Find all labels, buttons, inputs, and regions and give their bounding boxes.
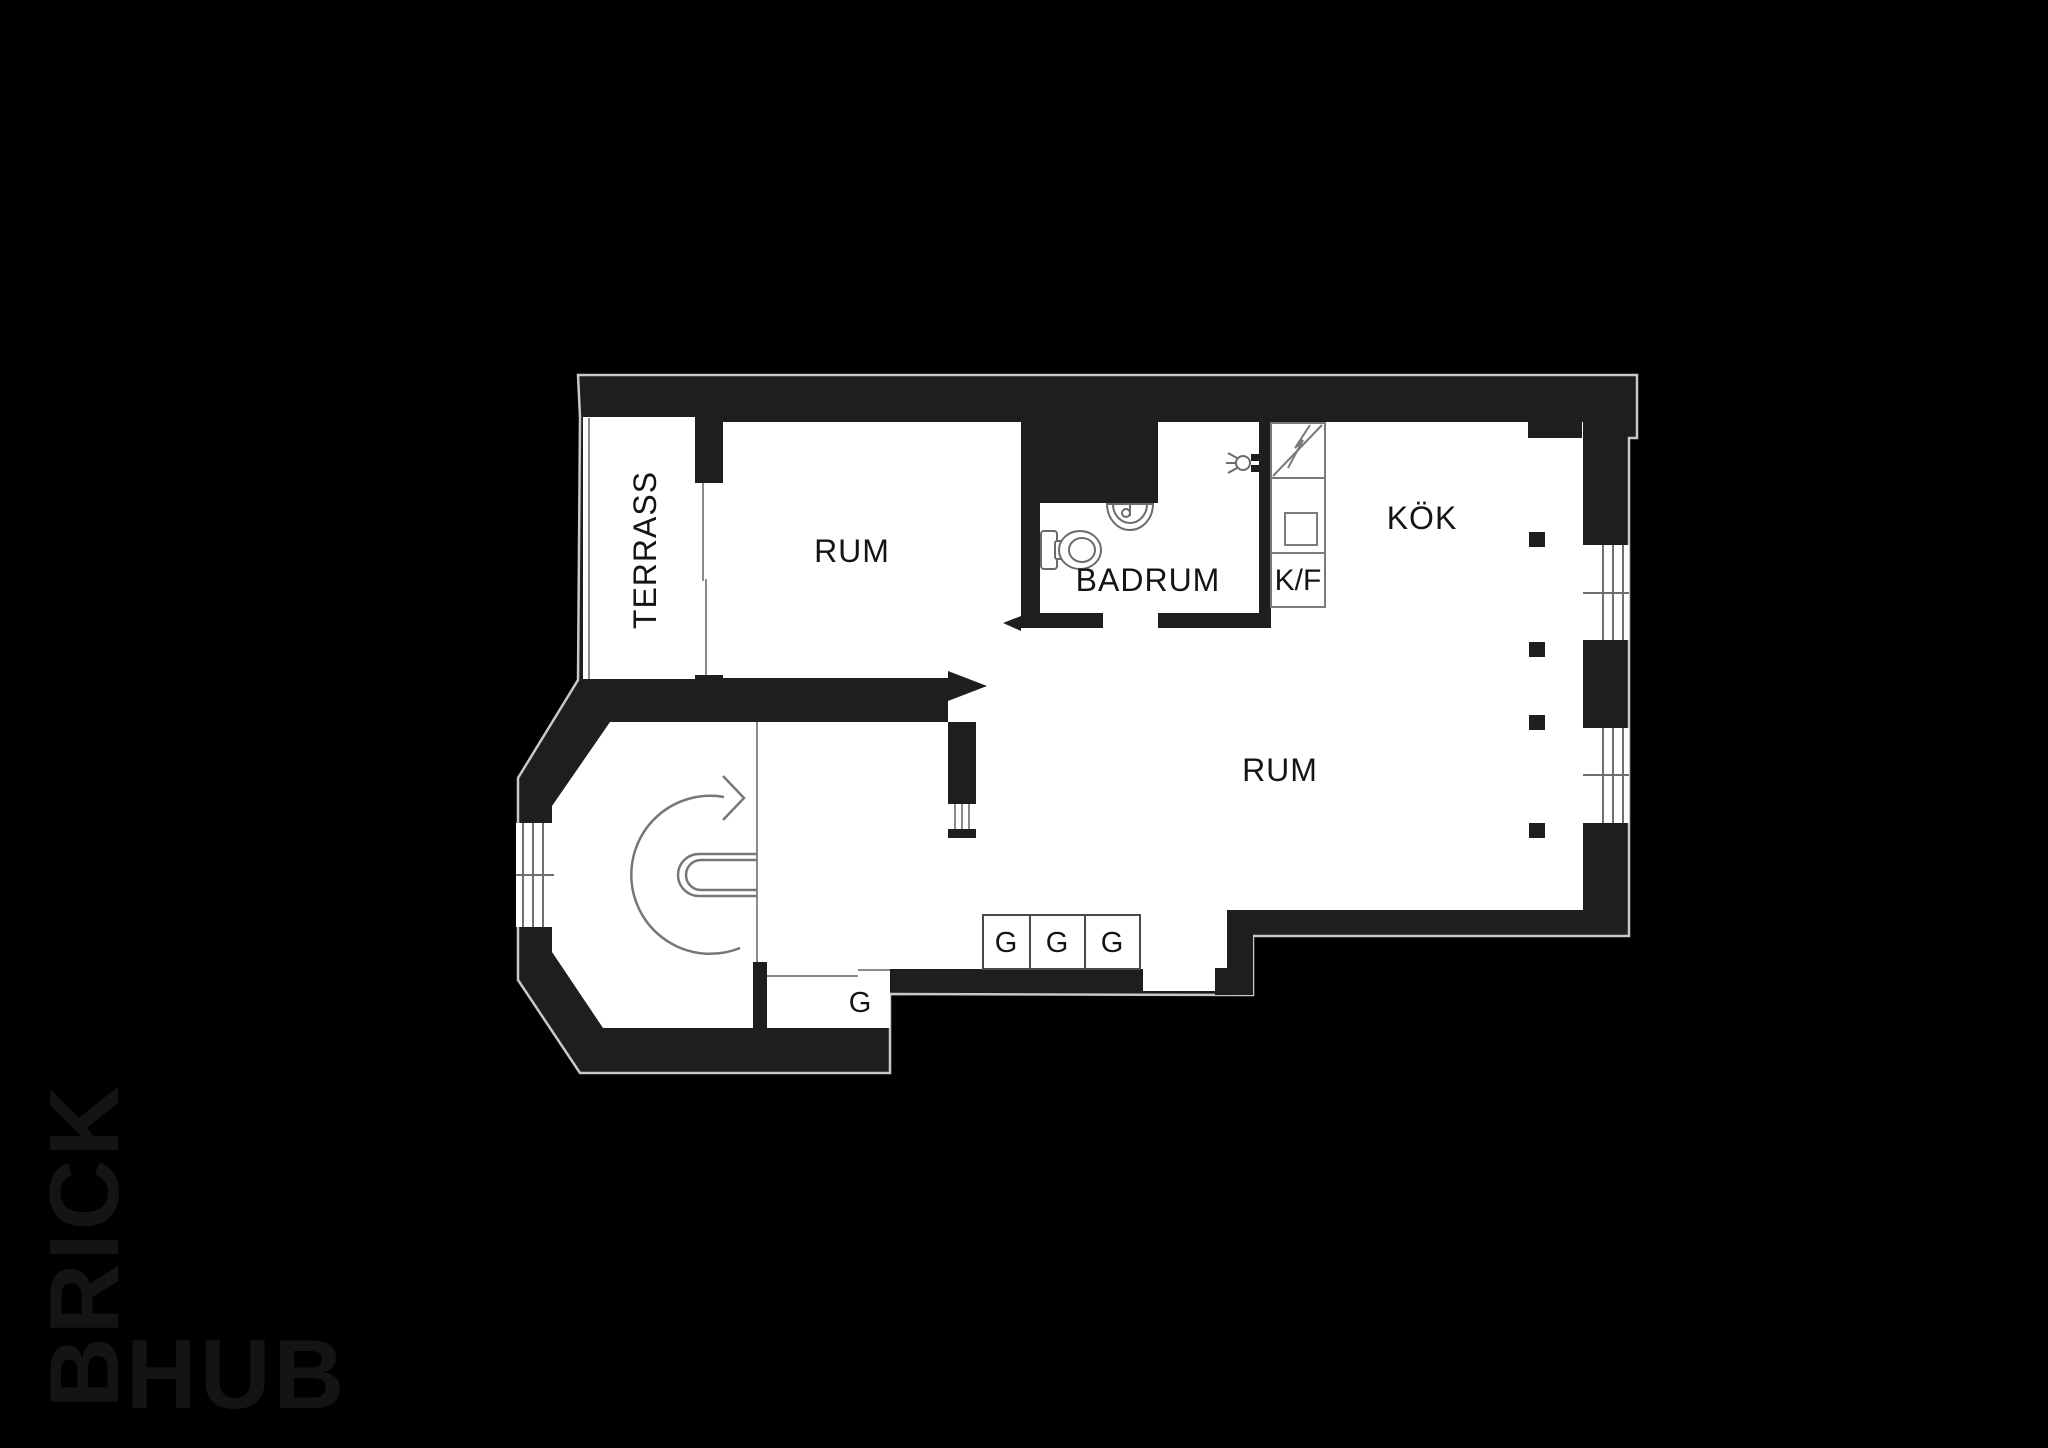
label-closet-bottom: G [849,987,872,1019]
wall-top-step [1528,422,1582,438]
floor-entry-nook [1143,910,1227,991]
logo-brick: BRICK [29,1083,139,1408]
wall-bathroom-right [1259,422,1271,628]
label-room-top: RUM [814,533,890,569]
label-terrass: TERRASS [627,471,663,629]
floorplan-canvas: TERRASS RUM BADRUM K/F KÖK RUM G G G G B… [0,0,2048,1448]
wall-bathroom-left [1021,422,1040,628]
radiator-icon [1529,642,1545,657]
floorplan-page: TERRASS RUM BADRUM K/F KÖK RUM G G G G B… [0,0,2048,1448]
label-bathroom: BADRUM [1076,562,1221,598]
label-room-main: RUM [1242,752,1318,788]
wall-bathroom-block [1040,417,1158,503]
wall-bottom-right-ext [1227,910,1253,995]
wall-terrace-pier-top [695,417,723,483]
radiator-icon [1529,715,1545,730]
floor-bathroom-door-gap [1103,610,1158,632]
radiator-icon [1529,823,1545,838]
wall-closet-stub [753,962,767,1028]
window-icon-bay-left [516,823,554,927]
wall-hall-corner-cap [948,829,976,838]
label-kitchen: KÖK [1387,500,1458,536]
floor-stair-bay [552,722,948,1028]
label-closet-3: G [1101,927,1124,959]
label-fridge-freezer: K/F [1275,564,1322,597]
wall-bathroom-bottom-left [1040,613,1103,628]
wall-terrace-pier-bottom [695,675,723,685]
label-closet-1: G [995,927,1018,959]
window-icon-right-1 [1583,545,1629,640]
radiator-icon [1529,532,1545,547]
label-closet-2: G [1046,927,1069,959]
wall-bathroom-bottom-right [1158,613,1271,628]
window-icon-right-2 [1583,728,1629,823]
logo-hub: HUB [126,1319,347,1429]
wall-hall-corner [948,722,976,804]
